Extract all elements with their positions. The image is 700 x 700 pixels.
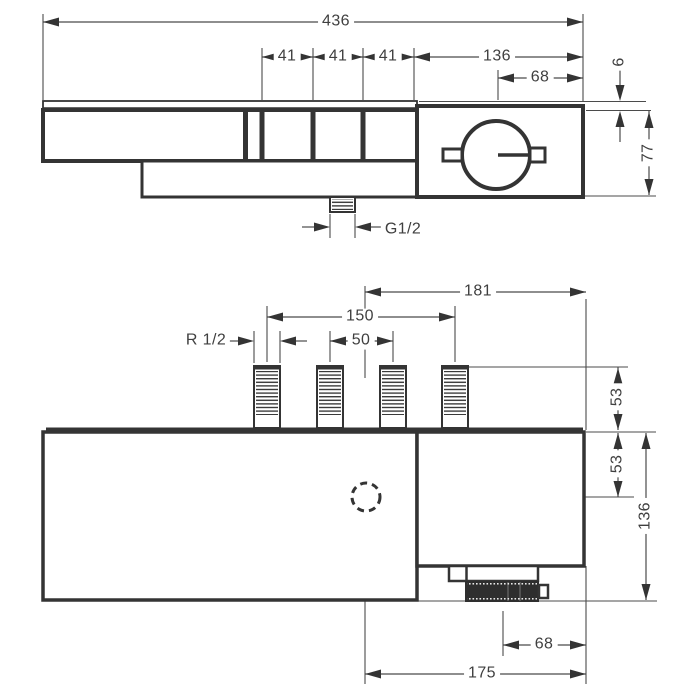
dim-total-depth: 136 (638, 498, 655, 534)
dim-inner-pipe-span: 50 (348, 333, 375, 350)
dim-spacing-1: 41 (274, 49, 301, 66)
dim-knob-offset: 68 (531, 637, 558, 654)
dim-plate-thickness: 6 (612, 53, 629, 70)
dim-center-to-right-edge: 181 (460, 284, 496, 301)
label-outlet-thread: G1/2 (381, 222, 425, 239)
front-view (43, 14, 656, 238)
dim-right-section-width: 136 (479, 49, 515, 66)
pipe-3 (380, 366, 406, 428)
dim-spacing-2: 41 (325, 49, 352, 66)
plan-right-block (417, 432, 584, 566)
technical-drawing: 436 41 41 41 136 68 6 77 G1/2 R 1/2 181 … (0, 0, 700, 700)
dim-center-depth: 53 (610, 451, 627, 478)
label-inlet-thread: R 1/2 (182, 333, 230, 350)
plan-body (43, 430, 584, 602)
dim-pipe-height: 53 (610, 384, 627, 411)
dim-spacing-3: 41 (375, 49, 402, 66)
plan-main-body (43, 432, 417, 600)
knob-left-tab (443, 149, 462, 161)
knob-side-tab (539, 585, 548, 598)
knob-right-tab (530, 148, 545, 162)
dim-handle-offset: 68 (527, 70, 554, 87)
drawing-linework (0, 0, 700, 700)
dim-outer-pipe-span: 150 (342, 309, 378, 326)
front-shelf (142, 161, 417, 197)
dim-center-to-edge-lower: 175 (464, 666, 500, 683)
pipe-2 (317, 366, 343, 428)
pipe-4 (442, 366, 468, 428)
dim-body-height: 77 (641, 140, 658, 167)
front-body (43, 101, 583, 212)
pipe-1 (254, 366, 280, 428)
outlet-connector-threads (332, 199, 353, 210)
knob-bracket (449, 566, 538, 581)
supply-pipes (254, 366, 468, 428)
dim-total-width: 436 (318, 14, 354, 31)
